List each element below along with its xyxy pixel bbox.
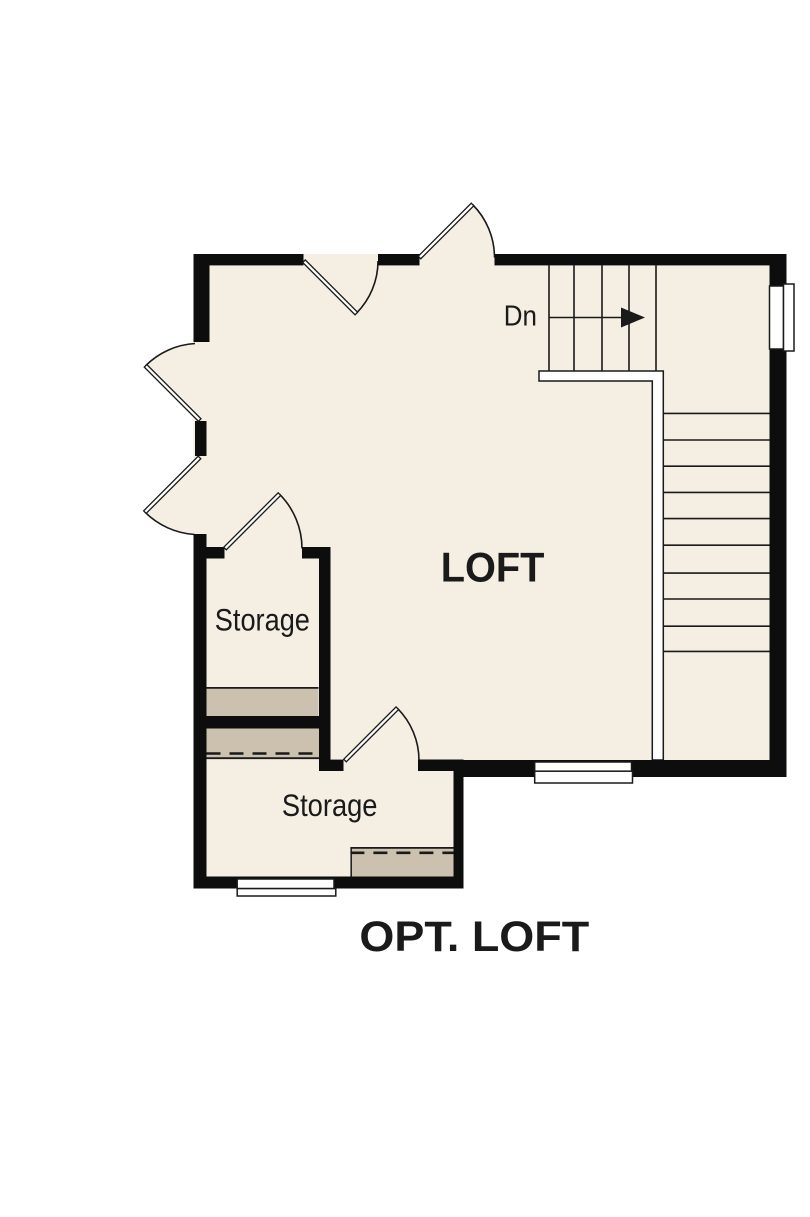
svg-text:Storage: Storage xyxy=(282,787,378,823)
svg-text:OPT. LOFT: OPT. LOFT xyxy=(359,913,589,961)
svg-text:Storage: Storage xyxy=(215,602,310,638)
svg-text:LOFT: LOFT xyxy=(441,544,545,591)
svg-text:Dn: Dn xyxy=(504,301,537,333)
